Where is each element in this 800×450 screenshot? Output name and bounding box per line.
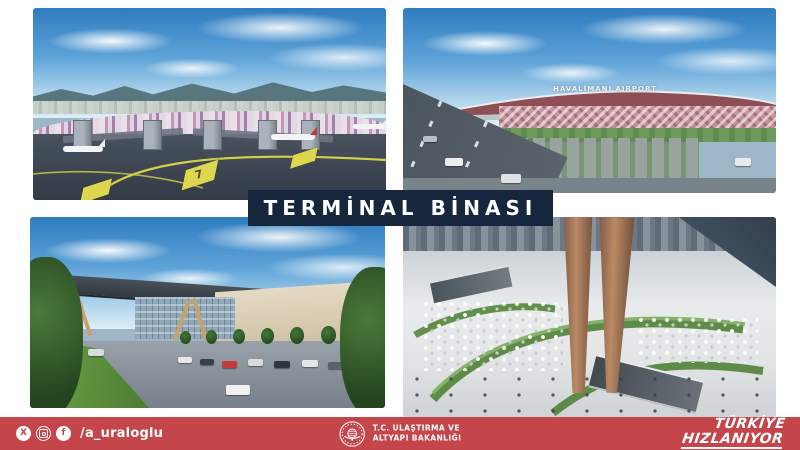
ministry-line1: T.C. ULAŞTIRMA VE [373,424,462,434]
ministry-line2: ALTYAPI BAKANLIĞI [373,434,462,444]
facebook-icon: f [56,426,71,441]
social-handle: /a_uraloglu [80,426,163,441]
tree [180,331,191,344]
food-court-tables [638,317,758,363]
slide-canvas: 7 HAVALİMANI AIRPORT [0,0,800,450]
social-links: X f /a_uraloglu [16,426,163,441]
car [88,349,104,356]
car [274,361,290,368]
tree [261,328,274,344]
x-icon: X [16,426,31,441]
car [735,158,751,166]
x-glyph: X [20,429,27,438]
render-airside-view: 7 [33,8,386,200]
footer-bar: X f /a_uraloglu T.C. ULAŞTIRMA VE ALTYAP [0,417,800,450]
tree [206,330,217,344]
ministry-name: T.C. ULAŞTIRMA VE ALTYAPI BAKANLIĞI [373,424,462,444]
food-court-tables [423,301,563,371]
page-title: TERMİNAL BİNASI [264,196,538,220]
car [423,136,437,142]
ministry-branding: T.C. ULAŞTIRMA VE ALTYAPI BAKANLIĞI [339,420,462,447]
render-approach-view: HAVALİMANI AIRPORT [403,8,776,193]
campaign-line2: HIZLANIYOR [681,432,785,450]
terminal-sign-text: HAVALİMANI AIRPORT [553,85,657,93]
render-landside-view [30,217,385,408]
ministry-emblem-icon [339,420,366,447]
instagram-glyph [39,429,48,438]
tree [290,327,304,344]
car [178,357,192,363]
title-banner: TERMİNAL BİNASI [248,190,553,226]
instagram-icon [36,426,51,441]
car [501,174,521,183]
car [200,359,214,365]
aircraft [353,124,386,129]
campaign-line1: TÜRKİYE [683,417,786,432]
campaign-logo: TÜRKİYE HIZLANIYOR [681,417,787,449]
people-crowd [413,375,766,417]
car [226,385,250,395]
car [302,360,318,367]
tree [321,326,336,344]
facebook-glyph: f [62,429,66,438]
tree [233,329,245,344]
car [445,158,463,166]
car [248,359,263,366]
car [222,361,237,368]
render-interior-atrium-view [403,217,776,417]
